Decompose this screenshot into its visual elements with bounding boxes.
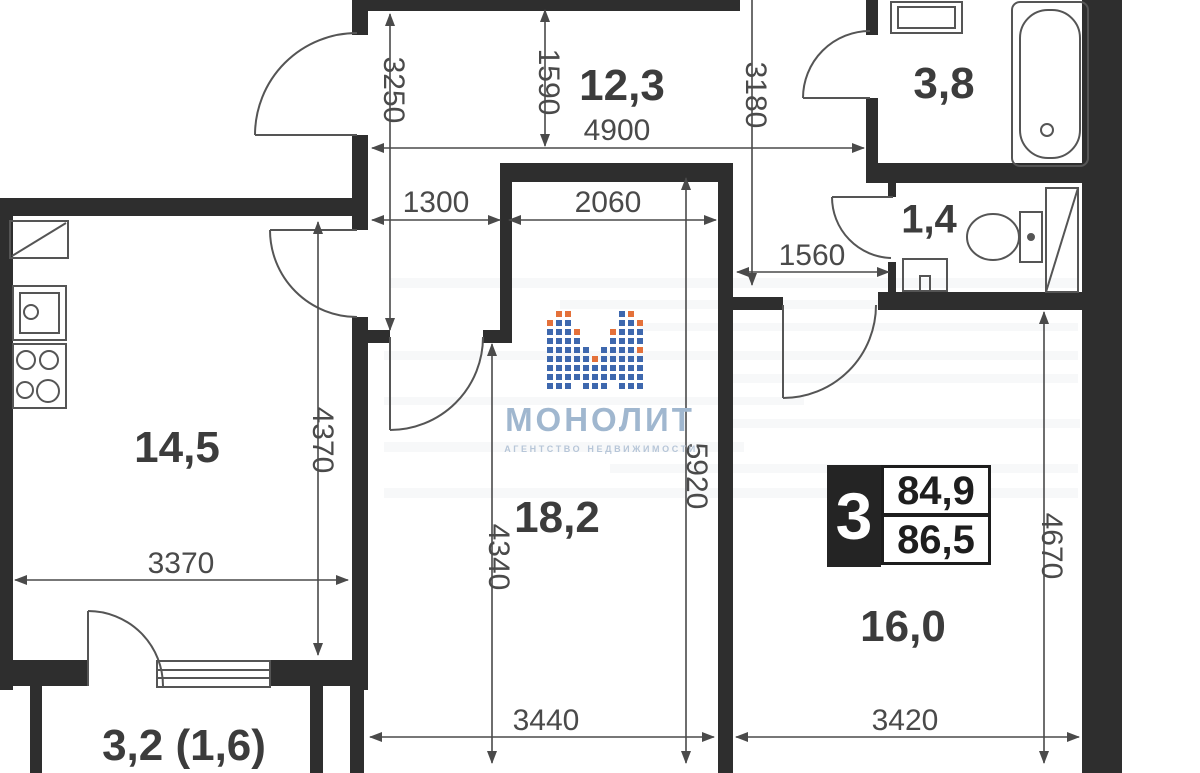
stove-icon (13, 344, 66, 408)
apartment-info-badge: 3 84,9 86,5 (827, 465, 991, 567)
vent-shaft-icon (10, 221, 68, 258)
bathtub-icon (1012, 2, 1088, 166)
dim-label-1560: 1560 (779, 239, 846, 273)
duct-niche-icon (1046, 188, 1078, 292)
area-living-value: 86,5 (881, 515, 991, 565)
room-label-balcony: 3,2 (1,6) (102, 721, 266, 771)
entrance-door (255, 33, 357, 135)
dim-label-3420: 3420 (872, 704, 939, 738)
balcony-window (157, 661, 270, 687)
area-total-value: 84,9 (881, 465, 991, 515)
dim-label-4370: 4370 (305, 407, 339, 474)
room-label-kitchen: 14,5 (134, 423, 220, 473)
living-room-door (390, 337, 483, 430)
monolit-logo-icon (547, 311, 643, 389)
room-label-living: 18,2 (514, 493, 600, 543)
washbasin-icon (891, 2, 962, 33)
dim-label-2060: 2060 (575, 186, 642, 220)
dim-label-3180: 3180 (738, 62, 772, 129)
kitchen-door (270, 230, 357, 317)
wc-basin-icon (903, 259, 947, 291)
bedroom-door (783, 305, 876, 398)
dim-label-4670: 4670 (1034, 513, 1068, 580)
bathroom-door (803, 31, 870, 98)
dim-label-3250: 3250 (376, 57, 410, 124)
room-label-hallway: 12,3 (579, 61, 665, 111)
kitchen-sink-icon (13, 286, 66, 340)
logo-tagline-text: АГЕНТСТВО НЕДВИЖИМОСТИ (504, 444, 698, 454)
dim-label-4900: 4900 (584, 114, 651, 148)
floorplan-page: 12,3 3,8 1,4 14,5 18,2 16,0 3,2 (1,6) 32… (0, 0, 1200, 773)
balcony-door (88, 611, 163, 686)
dim-label-4340: 4340 (481, 524, 515, 591)
logo-brand-text: МОНОЛИТ (505, 401, 695, 439)
toilet-icon (967, 212, 1042, 262)
dim-label-3440: 3440 (513, 704, 580, 738)
dim-label-1590: 1590 (531, 49, 565, 116)
room-label-bathroom: 3,8 (913, 59, 974, 109)
room-label-bedroom: 16,0 (860, 602, 946, 652)
dim-label-1300: 1300 (403, 186, 470, 220)
room-count-badge: 3 (827, 465, 881, 567)
room-label-wc: 1,4 (901, 198, 957, 243)
dim-label-3370: 3370 (148, 547, 215, 581)
